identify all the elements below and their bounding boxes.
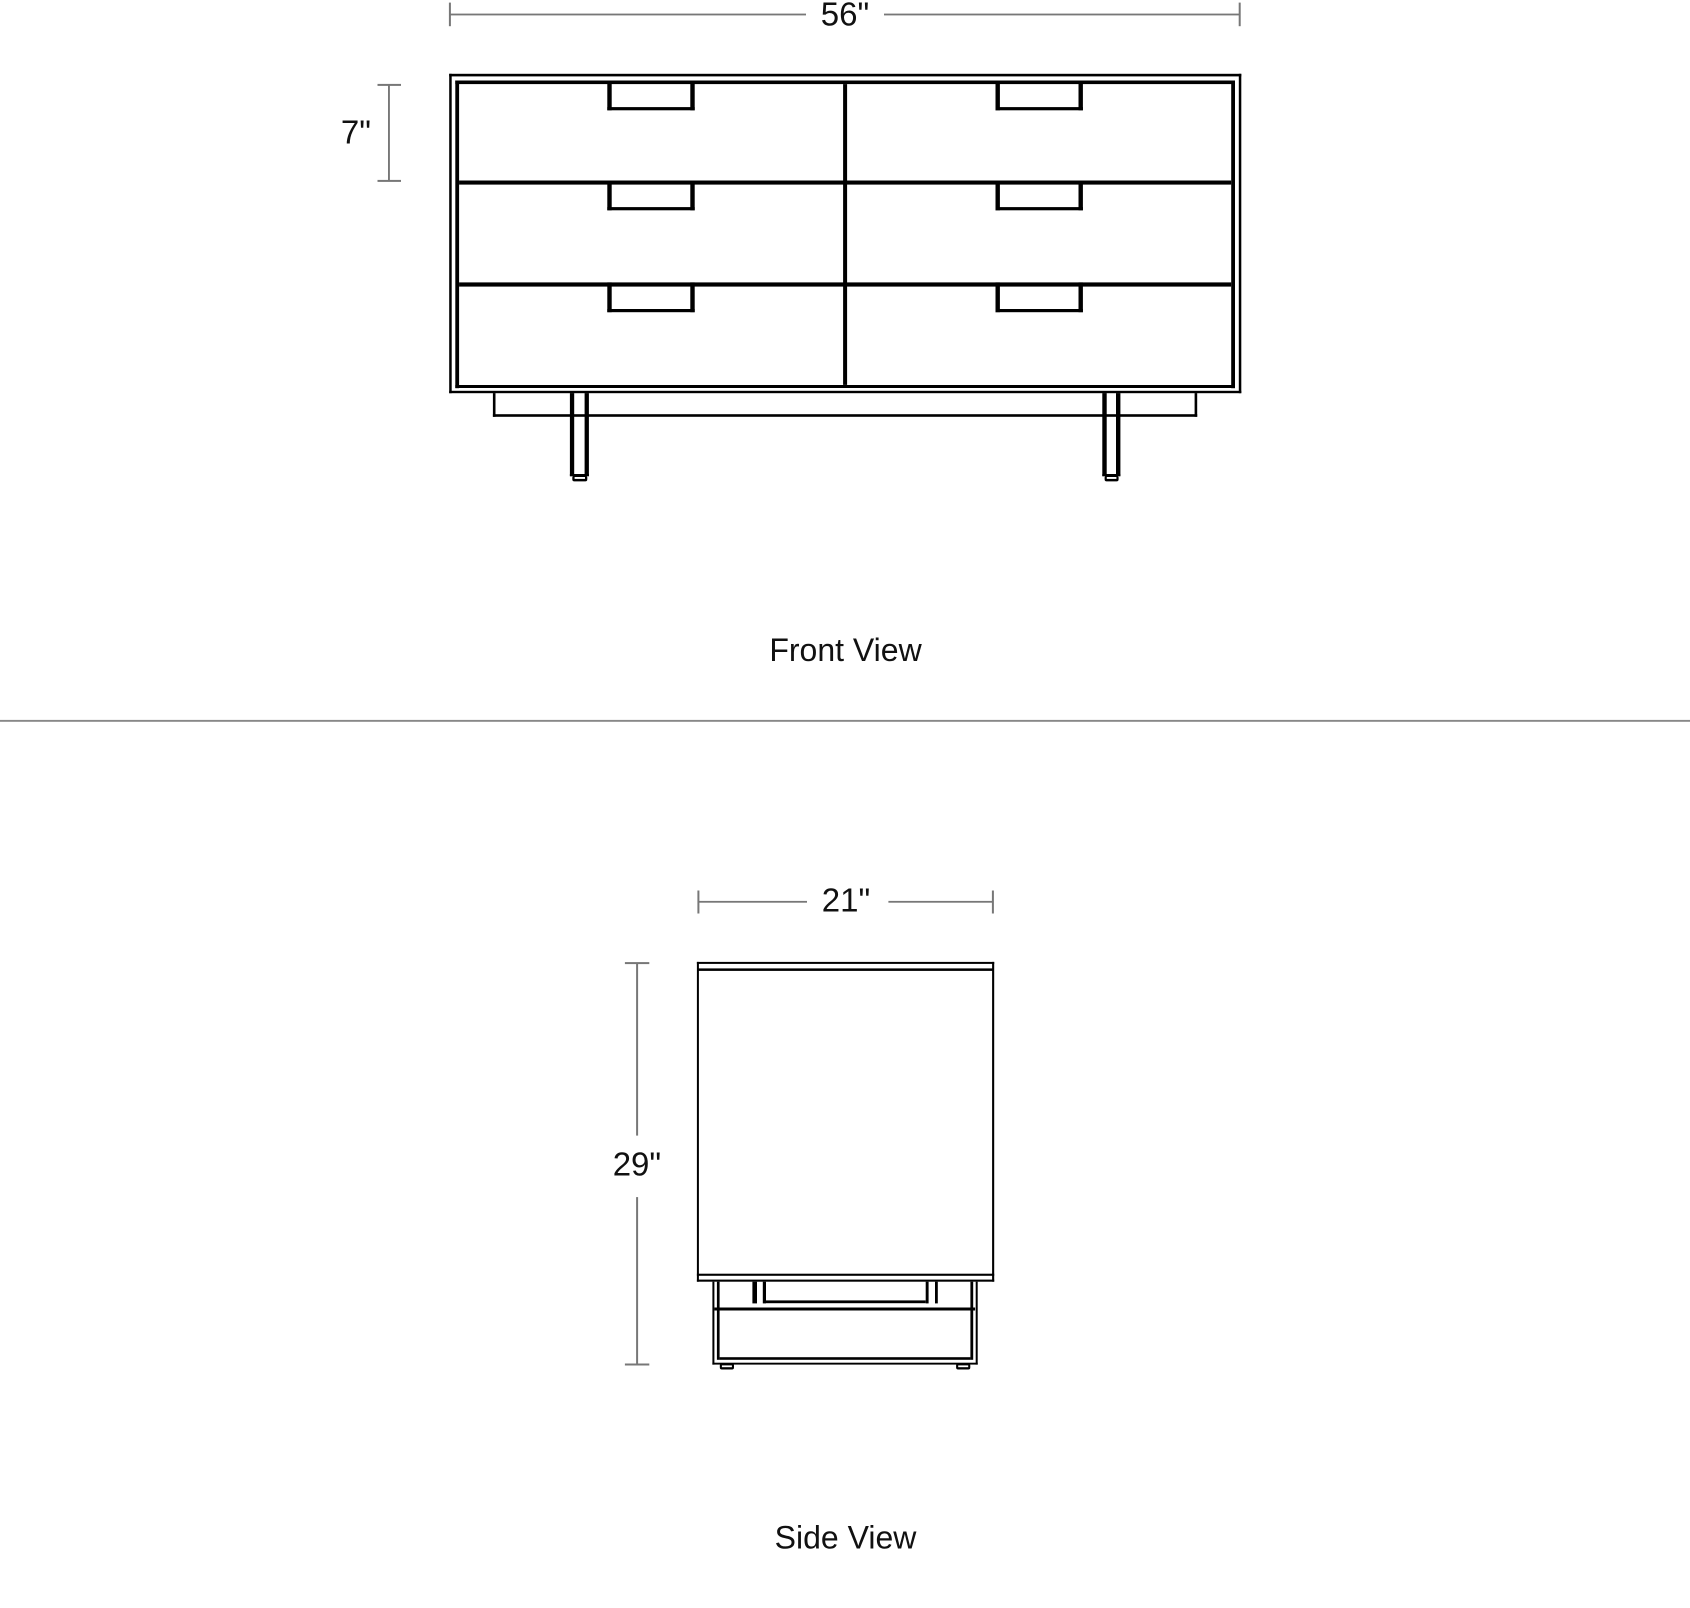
svg-text:56": 56"	[821, 0, 869, 32]
svg-text:Front View: Front View	[769, 632, 922, 668]
svg-text:Side View: Side View	[775, 1520, 918, 1556]
svg-text:7": 7"	[341, 114, 371, 151]
svg-text:21": 21"	[822, 882, 870, 919]
svg-text:29": 29"	[613, 1146, 661, 1183]
